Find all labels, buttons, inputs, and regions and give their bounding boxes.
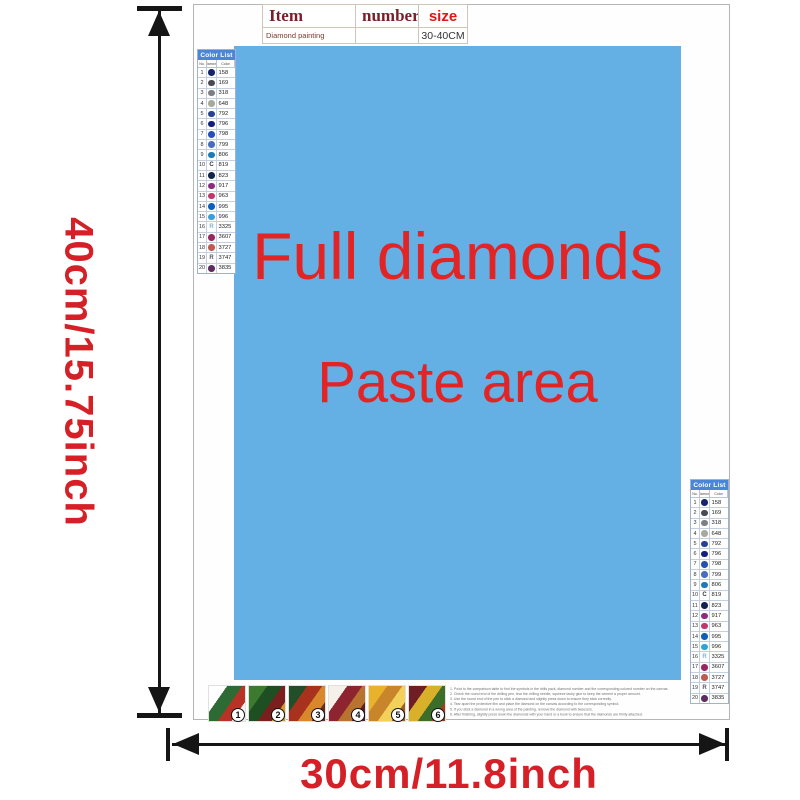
color-row-symbol: [207, 202, 217, 211]
size-header-cell: size: [419, 5, 467, 27]
color-row-symbol: [207, 233, 217, 242]
color-row-number: 2: [198, 78, 207, 87]
color-row-code: 3747: [217, 253, 235, 262]
diamond-symbol-icon: [208, 111, 215, 118]
color-row-symbol: R: [207, 253, 217, 262]
height-arrow-up-icon: [148, 11, 170, 36]
color-row-code: 3727: [710, 673, 728, 682]
step-thumbnail: 4: [328, 685, 366, 722]
color-row-symbol: [700, 622, 710, 631]
diamond-symbol-icon: [701, 499, 708, 506]
color-list-row: 9806: [198, 150, 235, 160]
color-row-symbol: [700, 560, 710, 569]
diamond-symbol-icon: [701, 602, 708, 609]
step-number-badge: 1: [231, 708, 245, 722]
color-row-symbol: [700, 694, 710, 703]
diamond-symbol-icon: [701, 633, 708, 640]
color-row-symbol: [700, 549, 710, 558]
color-list-subheader: No.DiamondColor: [198, 60, 235, 68]
color-row-symbol: [207, 99, 217, 108]
product-image: 40cm/15.75inch Item number size Diamond …: [0, 0, 800, 800]
diamond-symbol-icon: [208, 90, 215, 97]
color-list-row: 183727: [691, 673, 728, 683]
color-row-symbol: [700, 519, 710, 528]
color-row-code: 792: [217, 109, 235, 118]
color-row-number: 7: [198, 130, 207, 139]
width-arrow-left-icon: [173, 733, 199, 755]
diamond-symbol-icon: [701, 561, 708, 568]
color-list-row: 5792: [198, 109, 235, 119]
color-row-number: 3: [691, 519, 700, 528]
step-thumbnail: 1: [208, 685, 246, 722]
color-row-number: 9: [198, 150, 207, 159]
color-row-code: 917: [217, 181, 235, 190]
color-row-code: 798: [710, 560, 728, 569]
diamond-symbol-icon: [208, 265, 215, 272]
color-row-code: 158: [217, 68, 235, 77]
color-row-code: 318: [217, 89, 235, 98]
color-row-symbol: [700, 570, 710, 579]
height-arrow-down-icon: [148, 687, 170, 712]
color-list-column-label: No.: [691, 490, 700, 497]
color-row-code: 823: [710, 601, 728, 610]
width-dimension-label: 30cm/11.8inch: [300, 750, 598, 798]
diamond-symbol-letter: R: [209, 255, 213, 261]
diamond-symbol-icon: [701, 674, 708, 681]
diamond-symbol-icon: [208, 131, 215, 138]
color-row-code: 169: [710, 508, 728, 517]
color-row-symbol: [207, 109, 217, 118]
color-row-symbol: [700, 673, 710, 682]
color-row-symbol: [207, 68, 217, 77]
height-arrow-bottom-cap: [137, 713, 182, 718]
color-row-symbol: [207, 243, 217, 252]
color-row-code: 823: [217, 171, 235, 180]
color-row-number: 9: [691, 580, 700, 589]
height-arrow-line: [158, 9, 161, 714]
color-list-row: 1158: [691, 498, 728, 508]
color-row-code: 819: [217, 161, 235, 170]
color-list-title: Color List: [198, 50, 235, 60]
color-row-code: 798: [217, 130, 235, 139]
color-list-row: 6796: [691, 549, 728, 559]
color-row-code: 169: [217, 78, 235, 87]
color-row-number: 2: [691, 508, 700, 517]
color-list-row: 203835: [691, 694, 728, 703]
color-row-number: 10: [198, 161, 207, 170]
diamond-symbol-icon: [701, 664, 708, 671]
diamond-symbol-icon: [208, 121, 215, 128]
item-table-header: Item number size: [263, 5, 467, 27]
width-arrow-right-icon: [699, 733, 725, 755]
color-row-symbol: [207, 181, 217, 190]
color-list-row: 4648: [691, 529, 728, 539]
width-arrow-left-cap: [166, 728, 170, 761]
diamond-symbol-icon: [208, 203, 215, 210]
color-list-row: 14995: [691, 632, 728, 642]
color-row-symbol: [207, 212, 217, 221]
diamond-symbol-icon: [208, 69, 215, 76]
color-row-code: 963: [217, 192, 235, 201]
diamond-symbol-icon: [208, 244, 215, 251]
color-row-number: 15: [691, 642, 700, 651]
diamond-symbol-icon: [701, 582, 708, 589]
color-list-row: 13963: [691, 622, 728, 632]
diamond-symbol-icon: [701, 695, 708, 702]
color-row-symbol: R: [700, 683, 710, 692]
color-row-code: 3325: [217, 222, 235, 231]
color-list-row: 19R3747: [691, 683, 728, 693]
item-table-row: Diamond painting 30-40CM: [263, 27, 467, 43]
color-list-subheader: No.DiamondColor: [691, 490, 728, 498]
color-list-row: 3318: [691, 519, 728, 529]
instruction-thumbnails: 123456: [208, 685, 446, 722]
color-row-symbol: [207, 78, 217, 87]
color-row-number: 4: [691, 529, 700, 538]
diamond-symbol-icon: [701, 510, 708, 517]
color-row-symbol: [700, 539, 710, 548]
diamond-symbol-icon: [208, 172, 215, 179]
color-row-number: 4: [198, 99, 207, 108]
diamond-symbol-icon: [701, 551, 708, 558]
color-row-number: 20: [198, 264, 207, 273]
diamond-symbol-letter: R: [702, 654, 706, 660]
diamond-symbol-letter: C: [702, 592, 706, 598]
color-row-number: 1: [198, 68, 207, 77]
color-row-code: 158: [710, 498, 728, 507]
color-list-row: 10C819: [198, 161, 235, 171]
color-list-row: 2169: [198, 78, 235, 88]
color-row-number: 20: [691, 694, 700, 703]
color-list-row: 19R3747: [198, 253, 235, 263]
color-row-symbol: [207, 171, 217, 180]
color-row-symbol: [207, 130, 217, 139]
color-list-column-label: Color: [217, 60, 235, 67]
color-row-code: 796: [710, 549, 728, 558]
color-row-symbol: C: [700, 591, 710, 600]
color-row-symbol: [207, 150, 217, 159]
color-list-column-label: Diamond: [700, 490, 710, 497]
step-number-badge: 4: [351, 708, 365, 722]
paste-area-title: Full diamonds: [234, 218, 681, 294]
diamond-symbol-icon: [208, 152, 215, 159]
color-row-symbol: [700, 642, 710, 651]
color-row-symbol: [207, 264, 217, 273]
color-list-column-label: Diamond: [207, 60, 217, 67]
color-list-right: Color ListNo.DiamondColor115821693318464…: [690, 479, 729, 704]
color-row-code: 3835: [710, 694, 728, 703]
item-value-cell: Diamond painting: [263, 28, 356, 43]
color-row-number: 11: [198, 171, 207, 180]
color-row-code: 648: [710, 529, 728, 538]
color-row-number: 14: [198, 202, 207, 211]
color-list-row: 4648: [198, 99, 235, 109]
color-row-symbol: [700, 580, 710, 589]
color-row-number: 14: [691, 632, 700, 641]
paste-area-subtitle: Paste area: [234, 349, 681, 416]
color-row-number: 12: [198, 181, 207, 190]
step-thumbnail: 5: [368, 685, 406, 722]
step-number-badge: 5: [391, 708, 405, 722]
color-row-number: 18: [691, 673, 700, 682]
color-list-row: 5792: [691, 539, 728, 549]
color-list-row: 173607: [198, 233, 235, 243]
color-list-row: 183727: [198, 243, 235, 253]
diamond-symbol-icon: [701, 520, 708, 527]
color-row-symbol: [207, 119, 217, 128]
step-number-badge: 2: [271, 708, 285, 722]
instruction-text-block: 1. Point to the comparison table to find…: [450, 687, 690, 721]
color-row-symbol: [700, 508, 710, 517]
color-list-row: 10C819: [691, 591, 728, 601]
color-row-number: 5: [198, 109, 207, 118]
color-row-symbol: [700, 529, 710, 538]
diamond-symbol-icon: [208, 214, 215, 221]
color-row-code: 648: [217, 99, 235, 108]
diamond-symbol-icon: [208, 183, 215, 190]
color-list-column-label: Color: [710, 490, 728, 497]
color-list-row: 12917: [691, 611, 728, 621]
color-row-number: 13: [691, 622, 700, 631]
color-row-number: 3: [198, 89, 207, 98]
diamond-symbol-letter: R: [702, 685, 706, 691]
color-row-code: 3727: [217, 243, 235, 252]
color-list-row: 13963: [198, 192, 235, 202]
color-row-code: 3835: [217, 264, 235, 273]
instruction-line: 6. After finishing, slightly press down …: [450, 712, 690, 717]
color-list-title: Color List: [691, 480, 728, 490]
color-list-row: 3318: [198, 89, 235, 99]
color-row-code: 799: [217, 140, 235, 149]
diamond-symbol-icon: [208, 80, 215, 87]
number-header-cell: number: [356, 5, 419, 27]
color-row-code: 3325: [710, 652, 728, 661]
width-arrow-right-cap: [725, 728, 729, 761]
diamond-symbol-letter: R: [209, 224, 213, 230]
color-list-row: 6796: [198, 119, 235, 129]
color-list-row: 15996: [198, 212, 235, 222]
color-list-row: 12917: [198, 181, 235, 191]
color-row-number: 6: [198, 119, 207, 128]
item-header-cell: Item: [263, 5, 356, 27]
diamond-symbol-icon: [701, 623, 708, 630]
color-row-number: 8: [691, 570, 700, 579]
color-row-symbol: [207, 192, 217, 201]
color-row-code: 796: [217, 119, 235, 128]
color-row-number: 17: [691, 663, 700, 672]
color-row-symbol: [207, 89, 217, 98]
color-list-row: 11823: [198, 171, 235, 181]
color-list-column-label: No.: [198, 60, 207, 67]
diamond-symbol-letter: C: [209, 162, 213, 168]
color-row-code: 3607: [710, 663, 728, 672]
color-row-number: 12: [691, 611, 700, 620]
width-arrow-line: [172, 743, 726, 746]
color-row-number: 19: [691, 683, 700, 692]
color-list-row: 16R3325: [198, 222, 235, 232]
diamond-symbol-icon: [701, 571, 708, 578]
color-row-number: 13: [198, 192, 207, 201]
color-row-number: 1: [691, 498, 700, 507]
diamond-symbol-icon: [208, 234, 215, 241]
color-row-number: 10: [691, 591, 700, 600]
color-row-number: 17: [198, 233, 207, 242]
color-row-number: 19: [198, 253, 207, 262]
color-row-number: 8: [198, 140, 207, 149]
color-row-number: 16: [691, 652, 700, 661]
color-row-number: 7: [691, 560, 700, 569]
color-row-code: 995: [710, 632, 728, 641]
color-row-number: 16: [198, 222, 207, 231]
step-number-badge: 3: [311, 708, 325, 722]
color-list-row: 203835: [198, 264, 235, 273]
color-row-number: 6: [691, 549, 700, 558]
color-list-row: 16R3325: [691, 652, 728, 662]
color-row-symbol: [700, 498, 710, 507]
color-row-symbol: [700, 663, 710, 672]
color-row-code: 963: [710, 622, 728, 631]
canvas-sheet: Item number size Diamond painting 30-40C…: [193, 4, 730, 720]
color-row-symbol: C: [207, 161, 217, 170]
step-thumbnail: 2: [248, 685, 286, 722]
diamond-symbol-icon: [701, 530, 708, 537]
color-row-code: 318: [710, 519, 728, 528]
color-list-row: 7798: [691, 560, 728, 570]
diamond-symbol-icon: [208, 141, 215, 148]
diamond-symbol-icon: [701, 644, 708, 651]
diamond-symbol-icon: [208, 193, 215, 200]
paste-area: Full diamonds Paste area: [234, 46, 681, 680]
color-list-left: Color ListNo.DiamondColor115821693318464…: [197, 49, 236, 274]
number-value-cell: [356, 28, 419, 43]
height-dimension-label: 40cm/15.75inch: [56, 217, 101, 527]
color-row-code: 806: [710, 580, 728, 589]
color-row-code: 917: [710, 611, 728, 620]
color-row-number: 18: [198, 243, 207, 252]
color-row-number: 15: [198, 212, 207, 221]
color-list-row: 1158: [198, 68, 235, 78]
color-list-row: 2169: [691, 508, 728, 518]
color-row-number: 11: [691, 601, 700, 610]
color-row-code: 995: [217, 202, 235, 211]
item-table: Item number size Diamond painting 30-40C…: [262, 4, 468, 44]
color-row-symbol: [700, 601, 710, 610]
color-list-row: 14995: [198, 202, 235, 212]
step-number-badge: 6: [431, 708, 445, 722]
size-value-cell: 30-40CM: [419, 28, 467, 43]
color-list-row: 7798: [198, 130, 235, 140]
color-list-row: 173607: [691, 663, 728, 673]
color-row-code: 996: [217, 212, 235, 221]
color-list-row: 9806: [691, 580, 728, 590]
color-row-symbol: [700, 632, 710, 641]
color-row-symbol: R: [700, 652, 710, 661]
step-thumbnail: 6: [408, 685, 446, 722]
color-row-code: 799: [710, 570, 728, 579]
color-row-code: 996: [710, 642, 728, 651]
color-row-code: 3607: [217, 233, 235, 242]
color-row-symbol: [700, 611, 710, 620]
diamond-symbol-icon: [701, 541, 708, 548]
color-row-code: 792: [710, 539, 728, 548]
color-list-row: 8799: [691, 570, 728, 580]
color-row-number: 5: [691, 539, 700, 548]
color-row-symbol: [207, 140, 217, 149]
color-list-row: 15996: [691, 642, 728, 652]
color-row-code: 806: [217, 150, 235, 159]
diamond-symbol-icon: [701, 613, 708, 620]
color-list-row: 8799: [198, 140, 235, 150]
color-list-row: 11823: [691, 601, 728, 611]
diamond-symbol-icon: [208, 100, 215, 107]
step-thumbnail: 3: [288, 685, 326, 722]
color-row-symbol: R: [207, 222, 217, 231]
color-row-code: 3747: [710, 683, 728, 692]
color-row-code: 819: [710, 591, 728, 600]
